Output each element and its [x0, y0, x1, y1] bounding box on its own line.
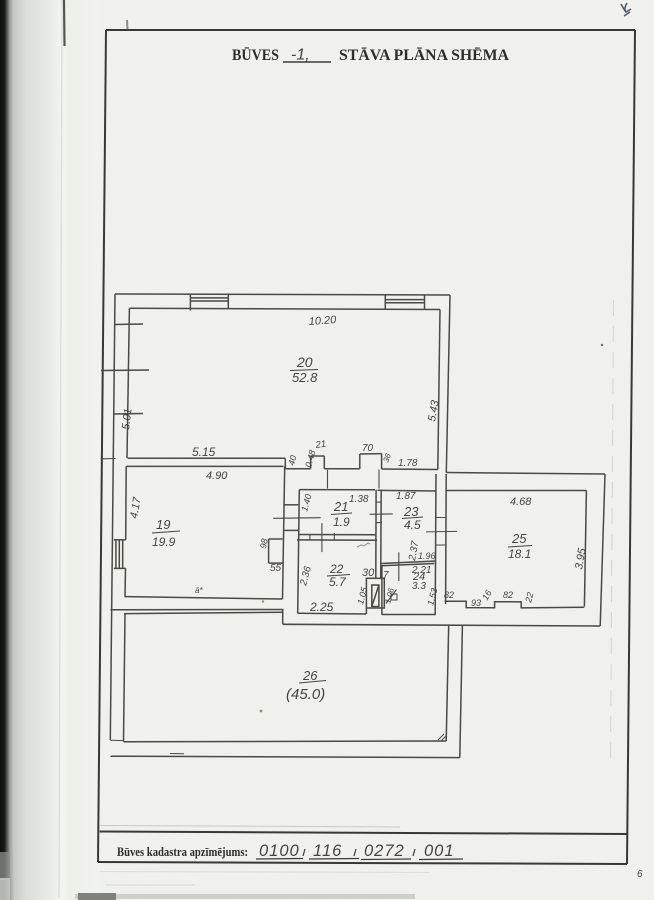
- svg-text:3.3: 3.3: [412, 581, 426, 592]
- svg-text:4.90: 4.90: [206, 470, 228, 482]
- svg-text:4.5: 4.5: [404, 518, 421, 532]
- svg-text:4.68: 4.68: [510, 496, 532, 508]
- svg-text:1.96: 1.96: [418, 551, 436, 561]
- svg-text:6: 6: [637, 869, 643, 880]
- svg-text:30: 30: [362, 567, 375, 579]
- svg-text:Būves kadastra apzīmējums:: Būves kadastra apzīmējums:: [117, 845, 248, 859]
- svg-text:STĀVA PLĀNA SHĒMA: STĀVA PLĀNA SHĒMA: [339, 47, 510, 64]
- svg-text:-1,: -1,: [291, 47, 310, 64]
- svg-text:70: 70: [362, 443, 374, 454]
- svg-text:0100: 0100: [259, 842, 300, 860]
- svg-text:1.87: 1.87: [396, 491, 416, 502]
- svg-text:20: 20: [296, 354, 313, 370]
- svg-text:52.8: 52.8: [292, 370, 318, 385]
- svg-text:1.38: 1.38: [349, 494, 369, 505]
- svg-text:22: 22: [329, 562, 344, 576]
- svg-text:23: 23: [403, 504, 419, 519]
- svg-text:26: 26: [302, 668, 318, 683]
- svg-text:55: 55: [270, 563, 282, 574]
- svg-text:0272: 0272: [364, 842, 405, 860]
- svg-text:ā*: ā*: [195, 586, 203, 595]
- svg-text:001: 001: [424, 842, 455, 860]
- svg-text:116: 116: [313, 842, 342, 860]
- svg-text:(45.0): (45.0): [286, 686, 325, 703]
- svg-text:19: 19: [156, 517, 170, 532]
- svg-text:1.9: 1.9: [333, 515, 350, 529]
- svg-text:10.20: 10.20: [308, 314, 337, 328]
- svg-text:98: 98: [258, 538, 270, 550]
- svg-text:BŪVES: BŪVES: [232, 47, 279, 64]
- svg-text:7: 7: [383, 570, 389, 581]
- svg-text:21: 21: [314, 439, 327, 452]
- svg-text:82: 82: [503, 590, 513, 600]
- svg-text:19.9: 19.9: [152, 535, 176, 549]
- svg-text:25: 25: [511, 531, 527, 546]
- svg-text:1.78: 1.78: [398, 458, 418, 469]
- svg-text:5.7: 5.7: [329, 575, 347, 589]
- svg-text:5.15: 5.15: [192, 445, 216, 459]
- svg-text:21: 21: [333, 499, 348, 514]
- svg-text:93: 93: [471, 598, 481, 608]
- svg-text:82: 82: [444, 590, 454, 600]
- svg-text:18.1: 18.1: [508, 547, 531, 561]
- svg-text:2.25: 2.25: [309, 600, 334, 614]
